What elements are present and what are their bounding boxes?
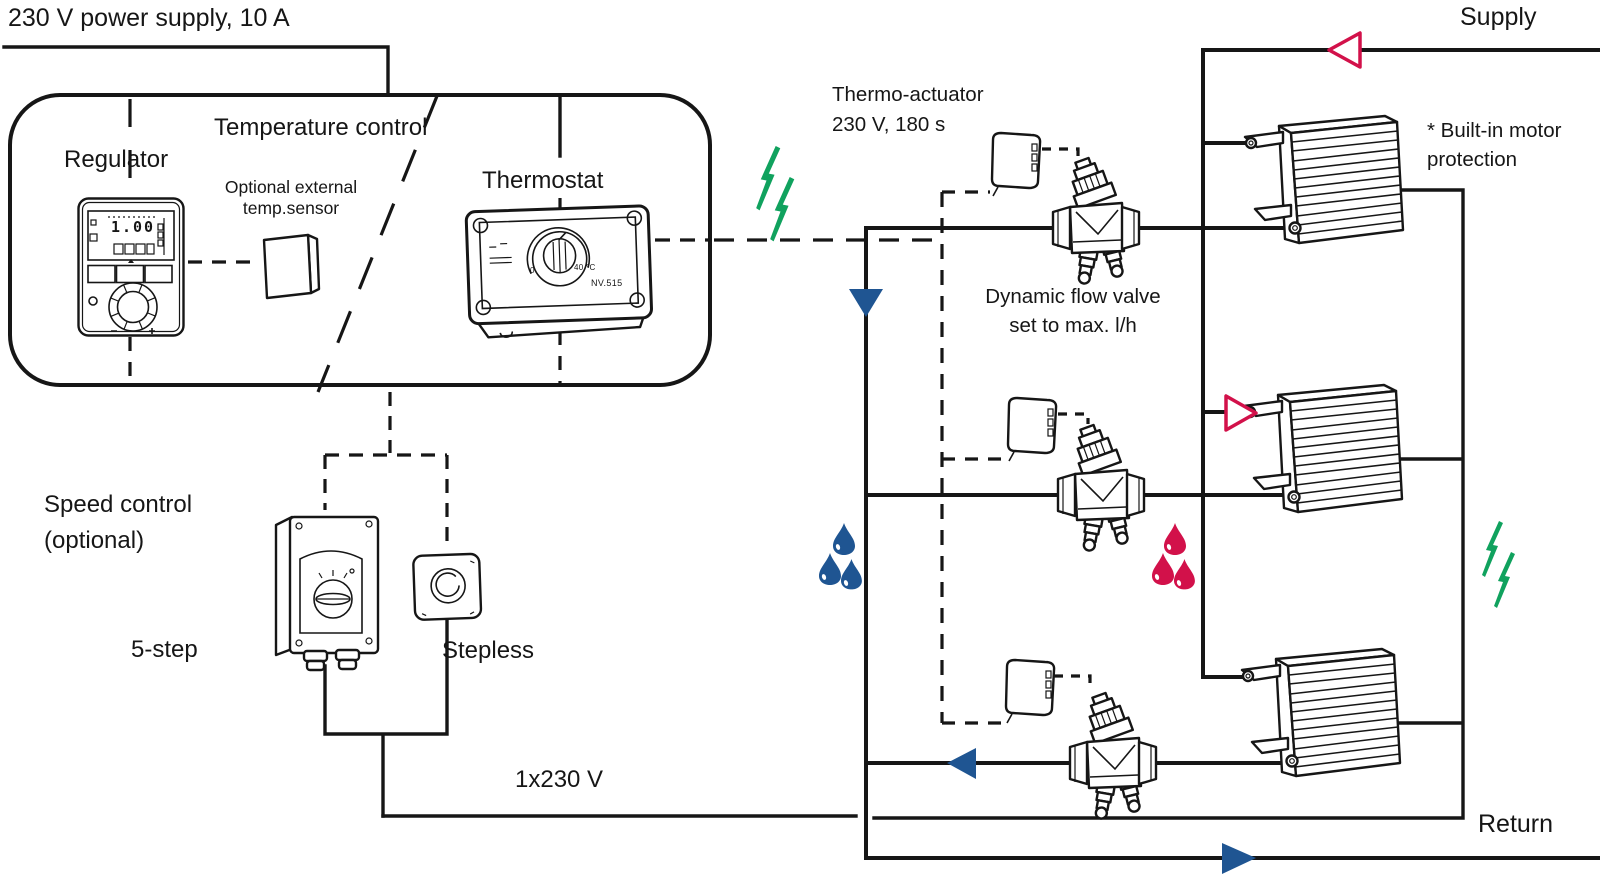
five-step-label: 5-step bbox=[131, 636, 198, 664]
mains-voltage-label: 1x230 V bbox=[515, 766, 603, 794]
sensor-label-line2: temp.sensor bbox=[210, 198, 372, 219]
radio-signal-icon-right bbox=[1482, 521, 1515, 608]
thermostat-scale-min: 0 bbox=[530, 266, 535, 275]
motor-protection-line1: * Built-in motor bbox=[1427, 116, 1561, 145]
thermostat-device bbox=[466, 206, 652, 339]
supply-arrow-left-icon bbox=[1329, 33, 1360, 67]
supply-arrow-right-icon bbox=[1226, 396, 1256, 430]
valve-label-line2: set to max. l/h bbox=[973, 312, 1173, 341]
speed-control-line1: Speed control bbox=[44, 487, 192, 523]
valve-label-line1: Dynamic flow valve bbox=[973, 283, 1173, 312]
fan-heater-1 bbox=[1245, 116, 1403, 243]
speed-control-label: Speed control (optional) bbox=[44, 487, 192, 558]
thermostat-model-label: NV.515 bbox=[591, 278, 623, 289]
thermostat-label: Thermostat bbox=[482, 167, 603, 195]
fan-heater-3 bbox=[1242, 649, 1400, 776]
dynamic-flow-valve-2 bbox=[1058, 421, 1144, 552]
actuator-valve-link-2 bbox=[1058, 414, 1088, 424]
supply-label: Supply bbox=[1460, 3, 1536, 33]
dynamic-flow-valve-1 bbox=[1053, 154, 1139, 285]
thermo-actuator-label-line2: 230 V, 180 s bbox=[832, 110, 984, 140]
temperature-control-label: Temperature control bbox=[214, 114, 427, 142]
stepless-label: Stepless bbox=[442, 637, 534, 665]
fan-heater-2 bbox=[1244, 385, 1402, 512]
schematic-canvas: 230 V power supply, 10 A Supply Temperat… bbox=[0, 0, 1600, 875]
thermo-actuator-3 bbox=[1006, 660, 1054, 723]
return-label: Return bbox=[1478, 810, 1553, 840]
electrical-lines bbox=[4, 47, 1463, 818]
speed-control-line2: (optional) bbox=[44, 523, 192, 559]
radio-signal-icon-left bbox=[756, 146, 794, 241]
regulator-label: Regulator bbox=[64, 146, 168, 174]
thermo-actuator-label-line1: Thermo-actuator bbox=[832, 80, 984, 110]
thermo-actuator-2 bbox=[1008, 398, 1056, 461]
motor-protection-note: * Built-in motor protection bbox=[1427, 116, 1561, 174]
power-supply-line bbox=[4, 47, 388, 93]
dynamic-flow-valve-label: Dynamic flow valve set to max. l/h bbox=[973, 283, 1173, 340]
dynamic-flow-valve-3 bbox=[1070, 689, 1156, 820]
hot-water-icon bbox=[1152, 523, 1195, 589]
return-arrow-down-icon bbox=[849, 289, 883, 317]
actuator-valve-link-3 bbox=[1054, 676, 1090, 688]
cold-water-icon bbox=[819, 523, 862, 589]
thermo-actuator-1 bbox=[992, 133, 1040, 196]
thermostat-scale-max: 40 °C bbox=[574, 263, 596, 272]
external-temp-sensor-device bbox=[264, 235, 319, 298]
motor-protection-line2: protection bbox=[1427, 145, 1561, 174]
sensor-label-line1: Optional external bbox=[210, 177, 372, 198]
thermo-actuator-label: Thermo-actuator 230 V, 180 s bbox=[832, 80, 984, 139]
five-step-controller-device bbox=[276, 517, 378, 670]
return-arrow-left-icon bbox=[947, 748, 976, 779]
power-supply-label: 230 V power supply, 10 A bbox=[8, 4, 290, 34]
return-arrow-right-icon bbox=[1222, 843, 1256, 874]
stepless-controller-device bbox=[413, 554, 481, 620]
regulator-display-value: 1.00 bbox=[96, 219, 170, 237]
sensor-label: Optional external temp.sensor bbox=[210, 177, 372, 218]
actuator-valve-link-1 bbox=[1042, 149, 1078, 161]
